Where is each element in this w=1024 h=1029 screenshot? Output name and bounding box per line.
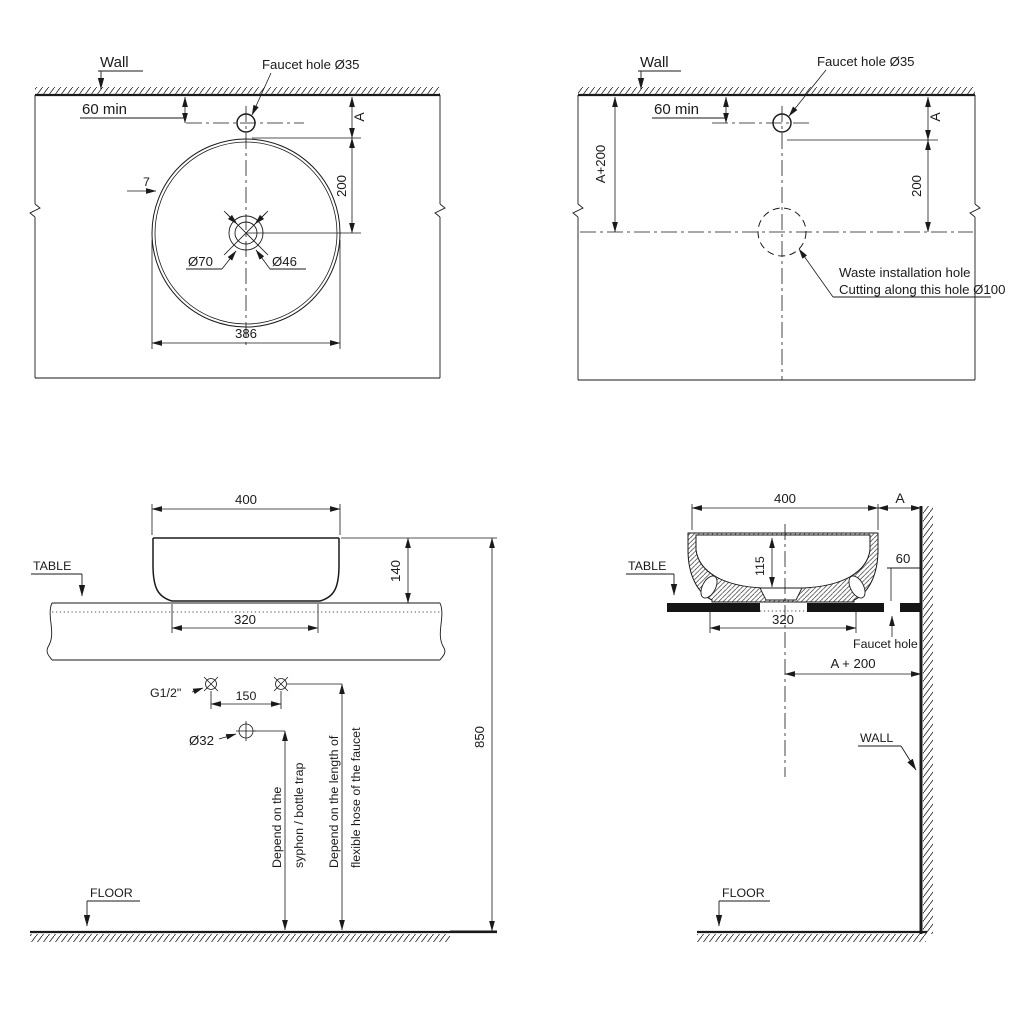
break-symbol [30,204,40,217]
table-label: TABLE [628,559,666,573]
floor-hatch [30,934,450,942]
dim-115-label: 115 [753,556,767,576]
waste-leader [799,249,833,297]
plan-view-cutting: Wall Faucet hole Ø35 60 min A+200 A 200 … [573,54,1005,380]
front-elevation: 400 140 850 320 TABLE G1/2" 150 [30,492,497,942]
drain-recess [760,588,802,600]
drain-symbol [236,721,256,741]
drain-arrow-right [255,213,266,224]
wall-hatch [923,506,933,934]
dim-a200-label: A+200 [593,145,608,184]
wall-hatch [578,87,975,95]
dim-d70-label: Ø70 [188,254,213,269]
faucet-hole-label: Faucet hole [853,637,918,651]
washbasin-installation-drawing: Wall Faucet hole Ø35 60 min A 200 Ø70 Ø4… [0,0,1024,1024]
note-hose-line2: flexible hose of the faucet [349,727,363,868]
countertop-outline [578,95,975,380]
waste-note-line2: Cutting along this hole Ø100 [839,282,1005,297]
dim-60min-label: 60 min [654,101,699,118]
faucet-hole-label: Faucet hole Ø35 [817,54,915,69]
note-syphon-line1: Depend on the [270,787,284,868]
wall-leader [901,746,916,770]
dim-850-label: 850 [472,726,487,748]
dim-d32-label: Ø32 [189,733,214,748]
dim-a-label: A [927,112,943,122]
dim-7-label: 7 [143,175,150,189]
waste-note-line1: Waste installation hole [839,265,970,280]
faucet-hole-label: Faucet hole Ø35 [262,57,360,72]
dim-60-label: 60 [896,551,911,566]
g-half-label: G1/2" [150,686,181,700]
side-section: 400 A 115 320 A + 200 60 Faucet hole TAB… [626,490,933,942]
dim-60min-label: 60 min [82,101,127,118]
dim-140-label: 140 [388,560,403,582]
wall-label: WALL [860,731,893,745]
table-section-mid [807,603,884,612]
water-supply-symbol-right [274,677,288,691]
dim-d46-leader [256,250,270,269]
dim-a-label: A [351,112,367,122]
d32-leader [219,734,236,739]
dim-a200-label: A + 200 [830,656,875,671]
dim-386-label: 386 [235,326,257,341]
dim-400-label: 400 [235,492,257,507]
g-half-leader [192,688,203,692]
wall-label: Wall [100,54,129,71]
note-hose-line1: Depend on the length of [327,735,341,868]
table-break-right [440,603,445,660]
table-section-right [900,603,921,612]
table-label: TABLE [33,559,71,573]
break-symbol [573,204,583,217]
dim-200-label: 200 [334,175,349,197]
break-symbol [970,204,980,217]
dim-320-label: 320 [772,612,794,627]
dim-d46-label: Ø46 [272,254,297,269]
table-section-left [667,603,760,612]
dim-150-label: 150 [236,689,257,703]
plan-view-basin: Wall Faucet hole Ø35 60 min A 200 Ø70 Ø4… [30,54,445,378]
break-symbol [435,204,445,217]
dim-a-label: A [895,490,905,506]
dim-320-label: 320 [234,612,256,627]
dim-200-label: 200 [909,175,924,197]
basin-outline [153,538,339,601]
floor-hatch [697,934,926,942]
water-supply-symbol-left [204,677,218,691]
floor-label: FLOOR [90,886,133,900]
note-syphon-line2: syphon / bottle trap [292,763,306,868]
floor-label: FLOOR [722,886,765,900]
table-break-left [47,603,52,660]
wall-label: Wall [640,54,669,71]
drawing-canvas: Wall Faucet hole Ø35 60 min A 200 Ø70 Ø4… [0,0,1024,1024]
dim-400-label: 400 [774,491,796,506]
basin-section-interior [696,535,870,588]
drain-arrow-left [226,213,237,224]
dim-d70-leader [222,251,236,269]
wall-hatch [35,87,440,95]
